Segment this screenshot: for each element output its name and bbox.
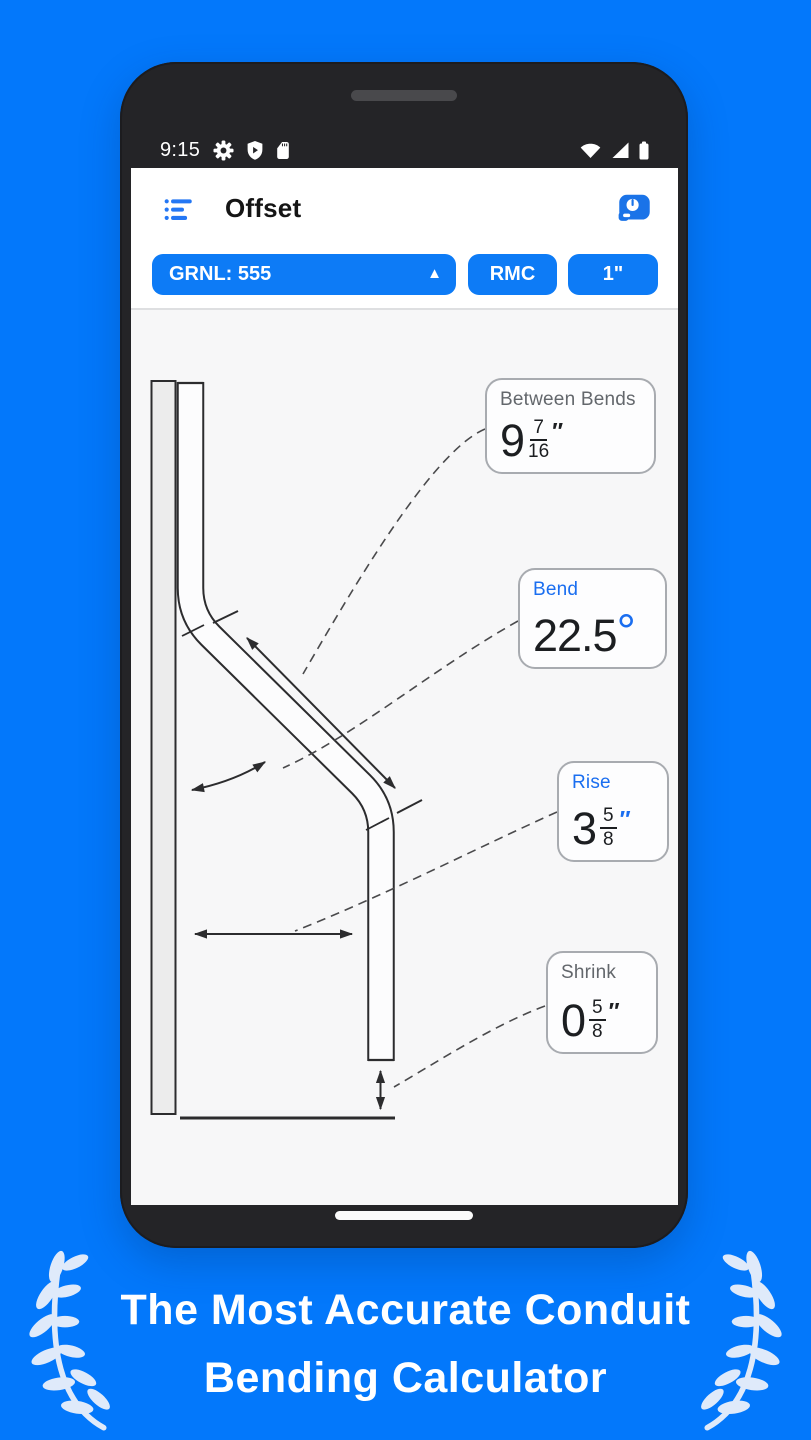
inch-mark: ″ (620, 808, 631, 831)
callout-label: Rise (572, 772, 657, 794)
callout-value: 3 5 8 ″ (572, 806, 657, 851)
home-indicator[interactable] (335, 1211, 473, 1220)
bender-select-label: GRNL: 555 (169, 263, 271, 286)
promo-caption: The Most Accurate Conduit Bending Calcul… (0, 1276, 811, 1412)
caption-line-2: Bending Calculator (0, 1344, 811, 1412)
app-screen: Offset GRNL: 555 ▲ RMC 1" (131, 168, 678, 1205)
inch-mark: ″ (609, 1000, 620, 1023)
promo-background: The Most Accurate Conduit Bending Calcul… (0, 0, 811, 1440)
bender-select-button[interactable]: GRNL: 555 ▲ (152, 254, 456, 295)
caption-line-1: The Most Accurate Conduit (0, 1276, 811, 1344)
callout-label: Shrink (561, 962, 646, 984)
status-bar: 9:15 (132, 130, 676, 170)
fraction: 7 16 (528, 418, 549, 462)
callout-shrink[interactable]: Shrink 0 5 8 ″ (546, 951, 658, 1054)
callout-value: 9 7 16 ″ (500, 418, 644, 463)
shield-play-icon (247, 141, 263, 160)
size-select-button[interactable]: 1" (568, 254, 658, 295)
callout-rise[interactable]: Rise 3 5 8 ″ (557, 761, 669, 862)
signal-icon (610, 142, 630, 159)
material-select-button[interactable]: RMC (468, 254, 557, 295)
callout-value: 0 5 8 ″ (561, 998, 646, 1043)
dropdown-triangle-icon: ▲ (427, 265, 442, 282)
gear-icon (213, 140, 234, 161)
callout-label: Between Bends (500, 389, 644, 411)
fraction: 5 8 (600, 806, 617, 850)
inch-mark: ″ (552, 420, 563, 443)
callout-label: Bend (533, 579, 655, 601)
degree-mark: ° (617, 609, 636, 657)
status-time: 9:15 (160, 139, 200, 162)
menu-list-icon[interactable] (164, 197, 193, 227)
callout-value: 22.5 ° (533, 613, 655, 658)
tape-measure-icon[interactable] (618, 192, 651, 228)
speaker-slot (351, 90, 457, 101)
callout-between-bends[interactable]: Between Bends 9 7 16 ″ (485, 378, 656, 474)
sd-card-icon (276, 141, 290, 160)
callout-bend[interactable]: Bend 22.5 ° (518, 568, 667, 669)
wifi-icon (579, 141, 602, 159)
diagram-area: Between Bends 9 7 16 ″ Bend 22.5 ° (131, 310, 678, 1206)
app-bar: Offset (131, 168, 678, 254)
fraction: 5 8 (589, 998, 606, 1042)
battery-icon (638, 141, 650, 160)
page-title: Offset (225, 193, 301, 224)
phone-frame: 9:15 (120, 62, 688, 1248)
